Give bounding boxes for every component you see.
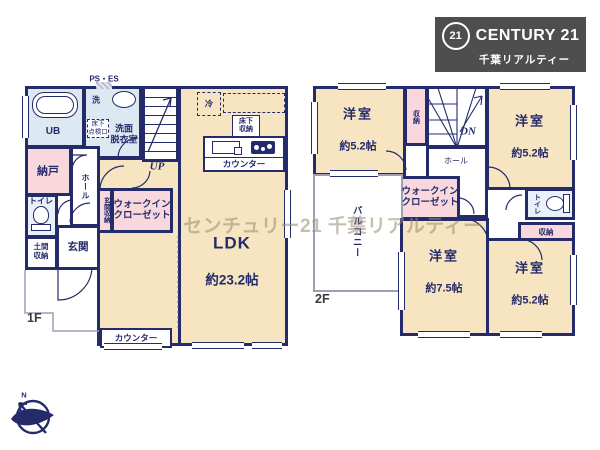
logo-subtitle: 千葉リアルティー (451, 52, 570, 67)
ldk-size-label: 約23.2帖 (205, 273, 258, 289)
storage-room-label: 納戸 (37, 166, 59, 179)
room-nw-size: 約5.2帖 (339, 141, 376, 154)
entrance-label: 玄関 (68, 241, 89, 253)
window-marker (311, 102, 318, 154)
kitchen-sink-icon (212, 141, 240, 154)
wic-label-2f: ウォークイン クローゼット (401, 186, 458, 208)
century21-logo: 21 CENTURY 21 千葉リアルティー (435, 17, 586, 72)
floor1-label: 1F (27, 311, 42, 325)
f2-stairs (426, 86, 488, 148)
fridge-label: 冷 (205, 99, 213, 108)
toilet-tank-icon-2f (563, 194, 570, 213)
watermark-text: センチュリー21 千葉リアルティー (183, 211, 443, 238)
f1-stairs (142, 86, 179, 162)
toilet-icon-2f (546, 196, 564, 211)
room-se-label: 洋室 (511, 260, 548, 275)
doma-label: 土間 収納 (34, 243, 49, 261)
toilet-label-1f: トイレ (29, 196, 53, 205)
window-marker (192, 342, 244, 349)
hall-label-2f: ホール (444, 156, 468, 165)
toilet-label-2f: トイレ (534, 194, 541, 215)
compass-icon (11, 401, 54, 433)
washroom-label: 洗面 脱衣室 (110, 123, 137, 144)
washer-label: 洗 (92, 95, 100, 104)
room-se-size: 約5.2帖 (511, 295, 548, 308)
kitchen-counter-label: カウンター (223, 159, 266, 169)
room-s-label: 洋室 (425, 248, 462, 263)
cupboard-space-box (223, 93, 285, 113)
compass-north-label: N (21, 392, 26, 401)
inspection-hatch-label: 床下 点検口 (88, 120, 108, 135)
logo-brand-text: CENTURY 21 (476, 27, 580, 45)
washbasin-icon (112, 91, 136, 108)
f1-ldk-extension (97, 157, 181, 346)
window-marker (398, 252, 405, 310)
window-marker (22, 96, 29, 138)
window-marker (104, 343, 162, 350)
stove-icon (251, 141, 275, 154)
entrance-storage-label: 玄関収納 (102, 197, 109, 223)
counter-label: カウンター (115, 333, 158, 343)
window-marker (570, 255, 577, 305)
toilet-icon-1f (33, 206, 49, 224)
window-marker (418, 331, 470, 338)
century21-badge-icon: 21 (442, 22, 470, 50)
window-marker (500, 83, 550, 90)
room-ne-label: 洋室 (511, 113, 548, 128)
window-marker (252, 342, 282, 349)
floorplan-canvas: PS・ES UB 洗 洗面 脱衣室 床下 点検口 納戸 ホール トイレ 土間 収… (0, 0, 600, 450)
closet-top-label: 収納 (413, 110, 420, 124)
dn-label: DN (460, 126, 476, 139)
hall-label-1f: ホール (81, 174, 89, 201)
floor2-label: 2F (315, 292, 330, 306)
underfloor-storage-label: 床下 収納 (239, 118, 253, 135)
window-marker (500, 331, 542, 338)
up-label: UP (150, 161, 165, 174)
window-marker (570, 105, 577, 160)
closet-east-label: 収納 (539, 229, 554, 238)
toilet-tank-icon-1f (31, 224, 51, 231)
ub-label: UB (46, 126, 60, 138)
room-nw-label: 洋室 (339, 106, 376, 121)
ps-es-label: PS・ES (89, 74, 118, 83)
room-ne-size: 約5.2帖 (511, 148, 548, 161)
room-s-size: 約7.5帖 (425, 283, 462, 296)
wic-label-1f: ウォークイン クローゼット (113, 199, 170, 221)
bathtub-icon (32, 92, 78, 118)
